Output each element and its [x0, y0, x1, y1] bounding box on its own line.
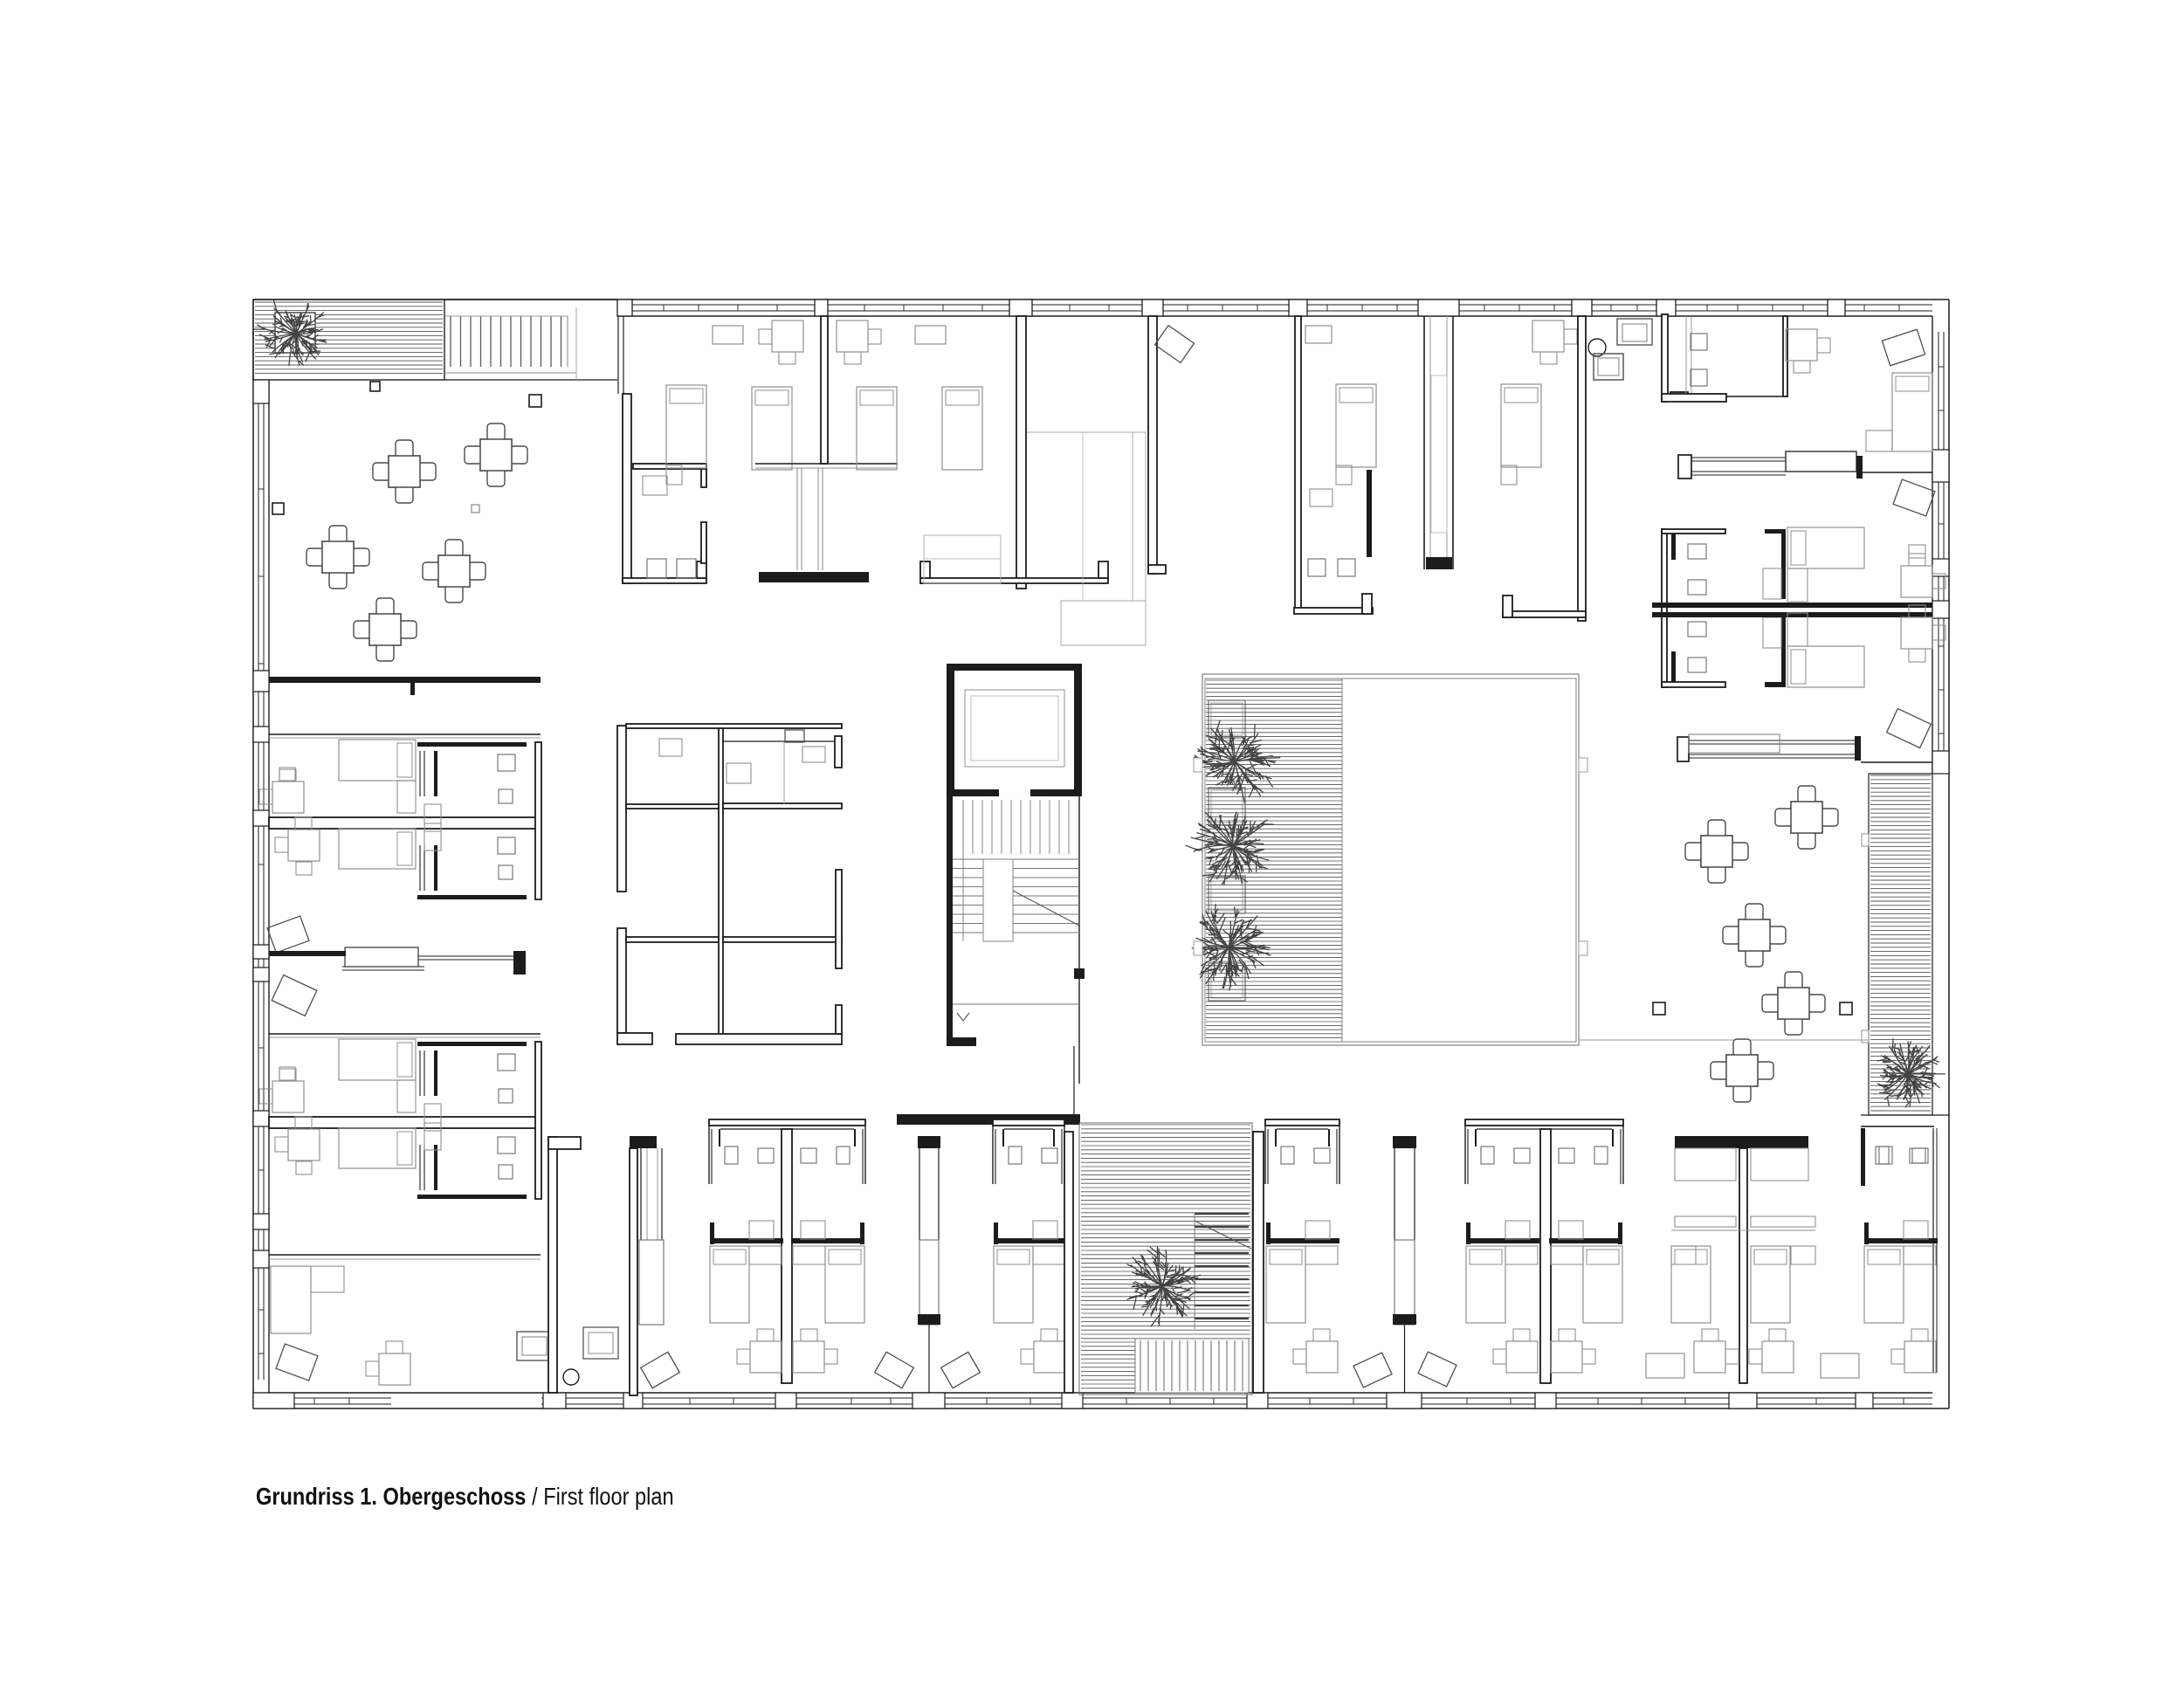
svg-text:/ First floor plan: / First floor plan	[532, 1484, 674, 1510]
svg-text:Grundriss 1. Obergeschoss: Grundriss 1. Obergeschoss	[256, 1484, 526, 1510]
